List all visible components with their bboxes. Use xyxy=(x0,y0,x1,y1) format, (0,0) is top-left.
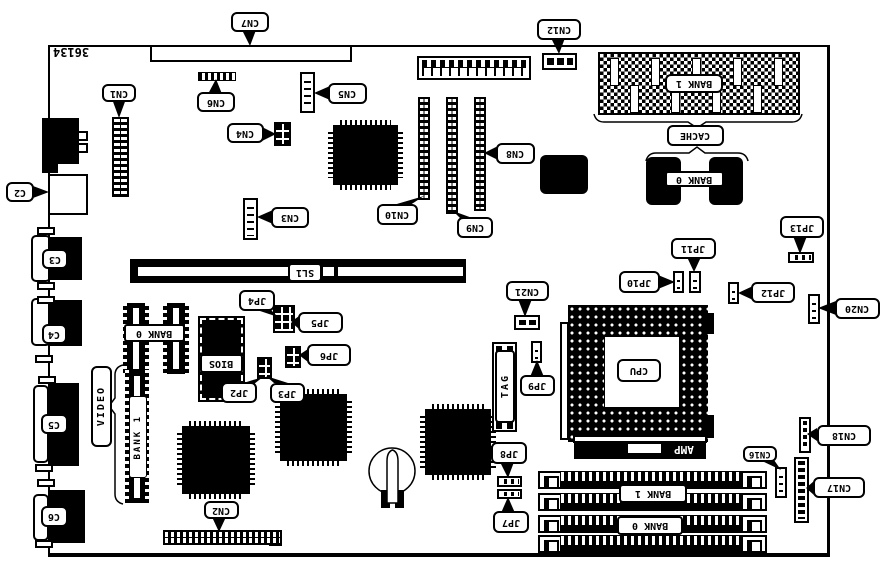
cache-socket-slot xyxy=(630,85,639,113)
callout-cn1: CN1 xyxy=(102,84,136,102)
cpu-socket-lever xyxy=(560,322,569,440)
jp8-jumper xyxy=(497,476,522,487)
callout-cn21: CN21 xyxy=(506,281,549,301)
chipset-chip-mid xyxy=(280,394,347,461)
connector-tab xyxy=(77,131,88,141)
jp9-jumper xyxy=(531,341,542,363)
label-mem-bank1: BANK 1 xyxy=(619,484,687,503)
connector-tab xyxy=(38,376,56,384)
callout-cn6: CN6 xyxy=(197,92,235,112)
c2-connector xyxy=(48,174,88,215)
motherboard-diagram: 36134 xyxy=(0,0,883,563)
callout-jp5: JP5 xyxy=(298,312,343,333)
connector-tab xyxy=(37,282,55,290)
callout-cn16: CN16 xyxy=(743,446,777,462)
simm-socket-row xyxy=(538,535,767,553)
cn3-header xyxy=(243,198,258,240)
label-cpu: CPU xyxy=(617,359,661,382)
cn4-block xyxy=(274,122,291,146)
cache-socket-slot xyxy=(733,58,742,86)
label-mem-bank0: BANK 0 xyxy=(617,516,683,535)
label-c3: C3 xyxy=(42,249,68,269)
label-c5: C5 xyxy=(41,414,68,434)
power-connector xyxy=(417,56,531,80)
callout-cn3: CN3 xyxy=(271,207,309,228)
sl1-slot-key xyxy=(323,267,334,276)
label-tag: TAG xyxy=(495,350,515,423)
callout-cn8: CN8 xyxy=(496,143,535,164)
chipset-chip-left xyxy=(182,426,250,494)
callout-cn10: CN10 xyxy=(377,204,418,225)
jp2-jp3-block xyxy=(257,357,272,379)
callout-cache: CACHE xyxy=(667,125,724,146)
power-connector-pins xyxy=(422,60,526,67)
board-part-number: 36134 xyxy=(53,45,105,63)
cn2-header xyxy=(163,530,282,545)
callout-jp12: JP12 xyxy=(751,282,795,303)
cache-socket-slot xyxy=(610,58,619,86)
cn8-slot xyxy=(474,97,486,211)
connector-tab xyxy=(37,227,55,235)
jp11-jumper xyxy=(689,271,701,293)
label-video-bank1: BANK 1 xyxy=(129,396,147,478)
label-c4: C4 xyxy=(42,324,67,344)
callout-jp6: JP6 xyxy=(307,344,351,366)
cn20-header xyxy=(808,294,820,324)
callout-jp2: JP2 xyxy=(221,382,257,403)
cn7-edge-connector xyxy=(150,45,352,62)
sl1-slot-stripe xyxy=(338,267,463,276)
cn12-connector xyxy=(542,53,577,70)
cache-socket-slot xyxy=(774,58,783,86)
callout-c2: C2 xyxy=(6,182,34,202)
amp-chip-label: AMP xyxy=(662,441,706,458)
cn21-connector xyxy=(514,315,540,330)
callout-jp9: JP9 xyxy=(520,375,555,396)
chipset-chip-top xyxy=(333,125,398,185)
connector-tab xyxy=(35,355,53,363)
cn16-header xyxy=(775,467,787,498)
callout-jp13: JP13 xyxy=(780,216,824,238)
label-cache-bank1: BANK 1 xyxy=(665,74,723,93)
battery-icon xyxy=(362,441,422,511)
jp7-jumper xyxy=(497,489,522,499)
label-cache-bank0: BANK 0 xyxy=(665,171,724,187)
callout-cn5: CN5 xyxy=(328,83,367,104)
cpu-socket-tab xyxy=(706,313,714,334)
callout-jp7: JP7 xyxy=(493,511,529,533)
jp6-block xyxy=(285,346,301,368)
connector-tab xyxy=(35,464,53,472)
keyboard-connector xyxy=(42,118,79,164)
callout-jp4: JP4 xyxy=(239,290,275,311)
keyboard-connector-step xyxy=(42,163,58,173)
cn17-header xyxy=(794,457,809,523)
connector-tab xyxy=(77,143,88,153)
jp4-jp5-block xyxy=(273,305,295,333)
label-sl1: SL1 xyxy=(288,263,322,282)
callout-cn17: CN17 xyxy=(813,477,865,498)
amp-chip-notch xyxy=(628,444,661,453)
connector-tab xyxy=(35,540,53,548)
sl1-slot-stripe xyxy=(138,267,288,276)
cache-chip xyxy=(540,155,588,194)
label-bios: BIOS xyxy=(200,354,243,373)
connector-tab xyxy=(37,479,55,487)
callout-cn9: CN9 xyxy=(457,217,493,238)
jp12-jumper xyxy=(728,282,739,304)
cn1-header xyxy=(112,117,129,197)
callout-cn7: CN7 xyxy=(231,12,269,32)
cn9-slot xyxy=(446,97,458,214)
callout-jp11: JP11 xyxy=(671,238,716,259)
battery-symbol xyxy=(362,441,422,511)
label-video-bank0: BANK 0 xyxy=(124,324,185,342)
cn6-header xyxy=(198,72,236,81)
callout-video: VIDEO xyxy=(91,366,112,447)
chipset-chip-right xyxy=(425,409,491,475)
callout-cn2: CN2 xyxy=(204,501,239,519)
label-c6: C6 xyxy=(41,506,68,527)
cn10-slot xyxy=(418,97,430,200)
cpu-socket-tab xyxy=(706,415,714,438)
callout-jp3: JP3 xyxy=(270,383,305,403)
callout-jp10: JP10 xyxy=(619,271,660,293)
cn5-header xyxy=(300,72,315,113)
callout-jp8: JP8 xyxy=(491,442,527,464)
connector-tab xyxy=(37,296,55,304)
jp10-jumper xyxy=(673,271,684,293)
cache-socket-slot xyxy=(651,58,660,86)
callout-cn18: CN18 xyxy=(817,425,871,446)
callout-cn20: CN20 xyxy=(835,298,880,319)
callout-cn12: CN12 xyxy=(537,19,581,40)
cn18-header xyxy=(799,417,811,453)
jp13-jumper xyxy=(788,252,814,263)
callout-cn4: CN4 xyxy=(227,123,264,143)
cache-socket-slot xyxy=(753,85,762,113)
power-connector-holes xyxy=(422,67,526,76)
